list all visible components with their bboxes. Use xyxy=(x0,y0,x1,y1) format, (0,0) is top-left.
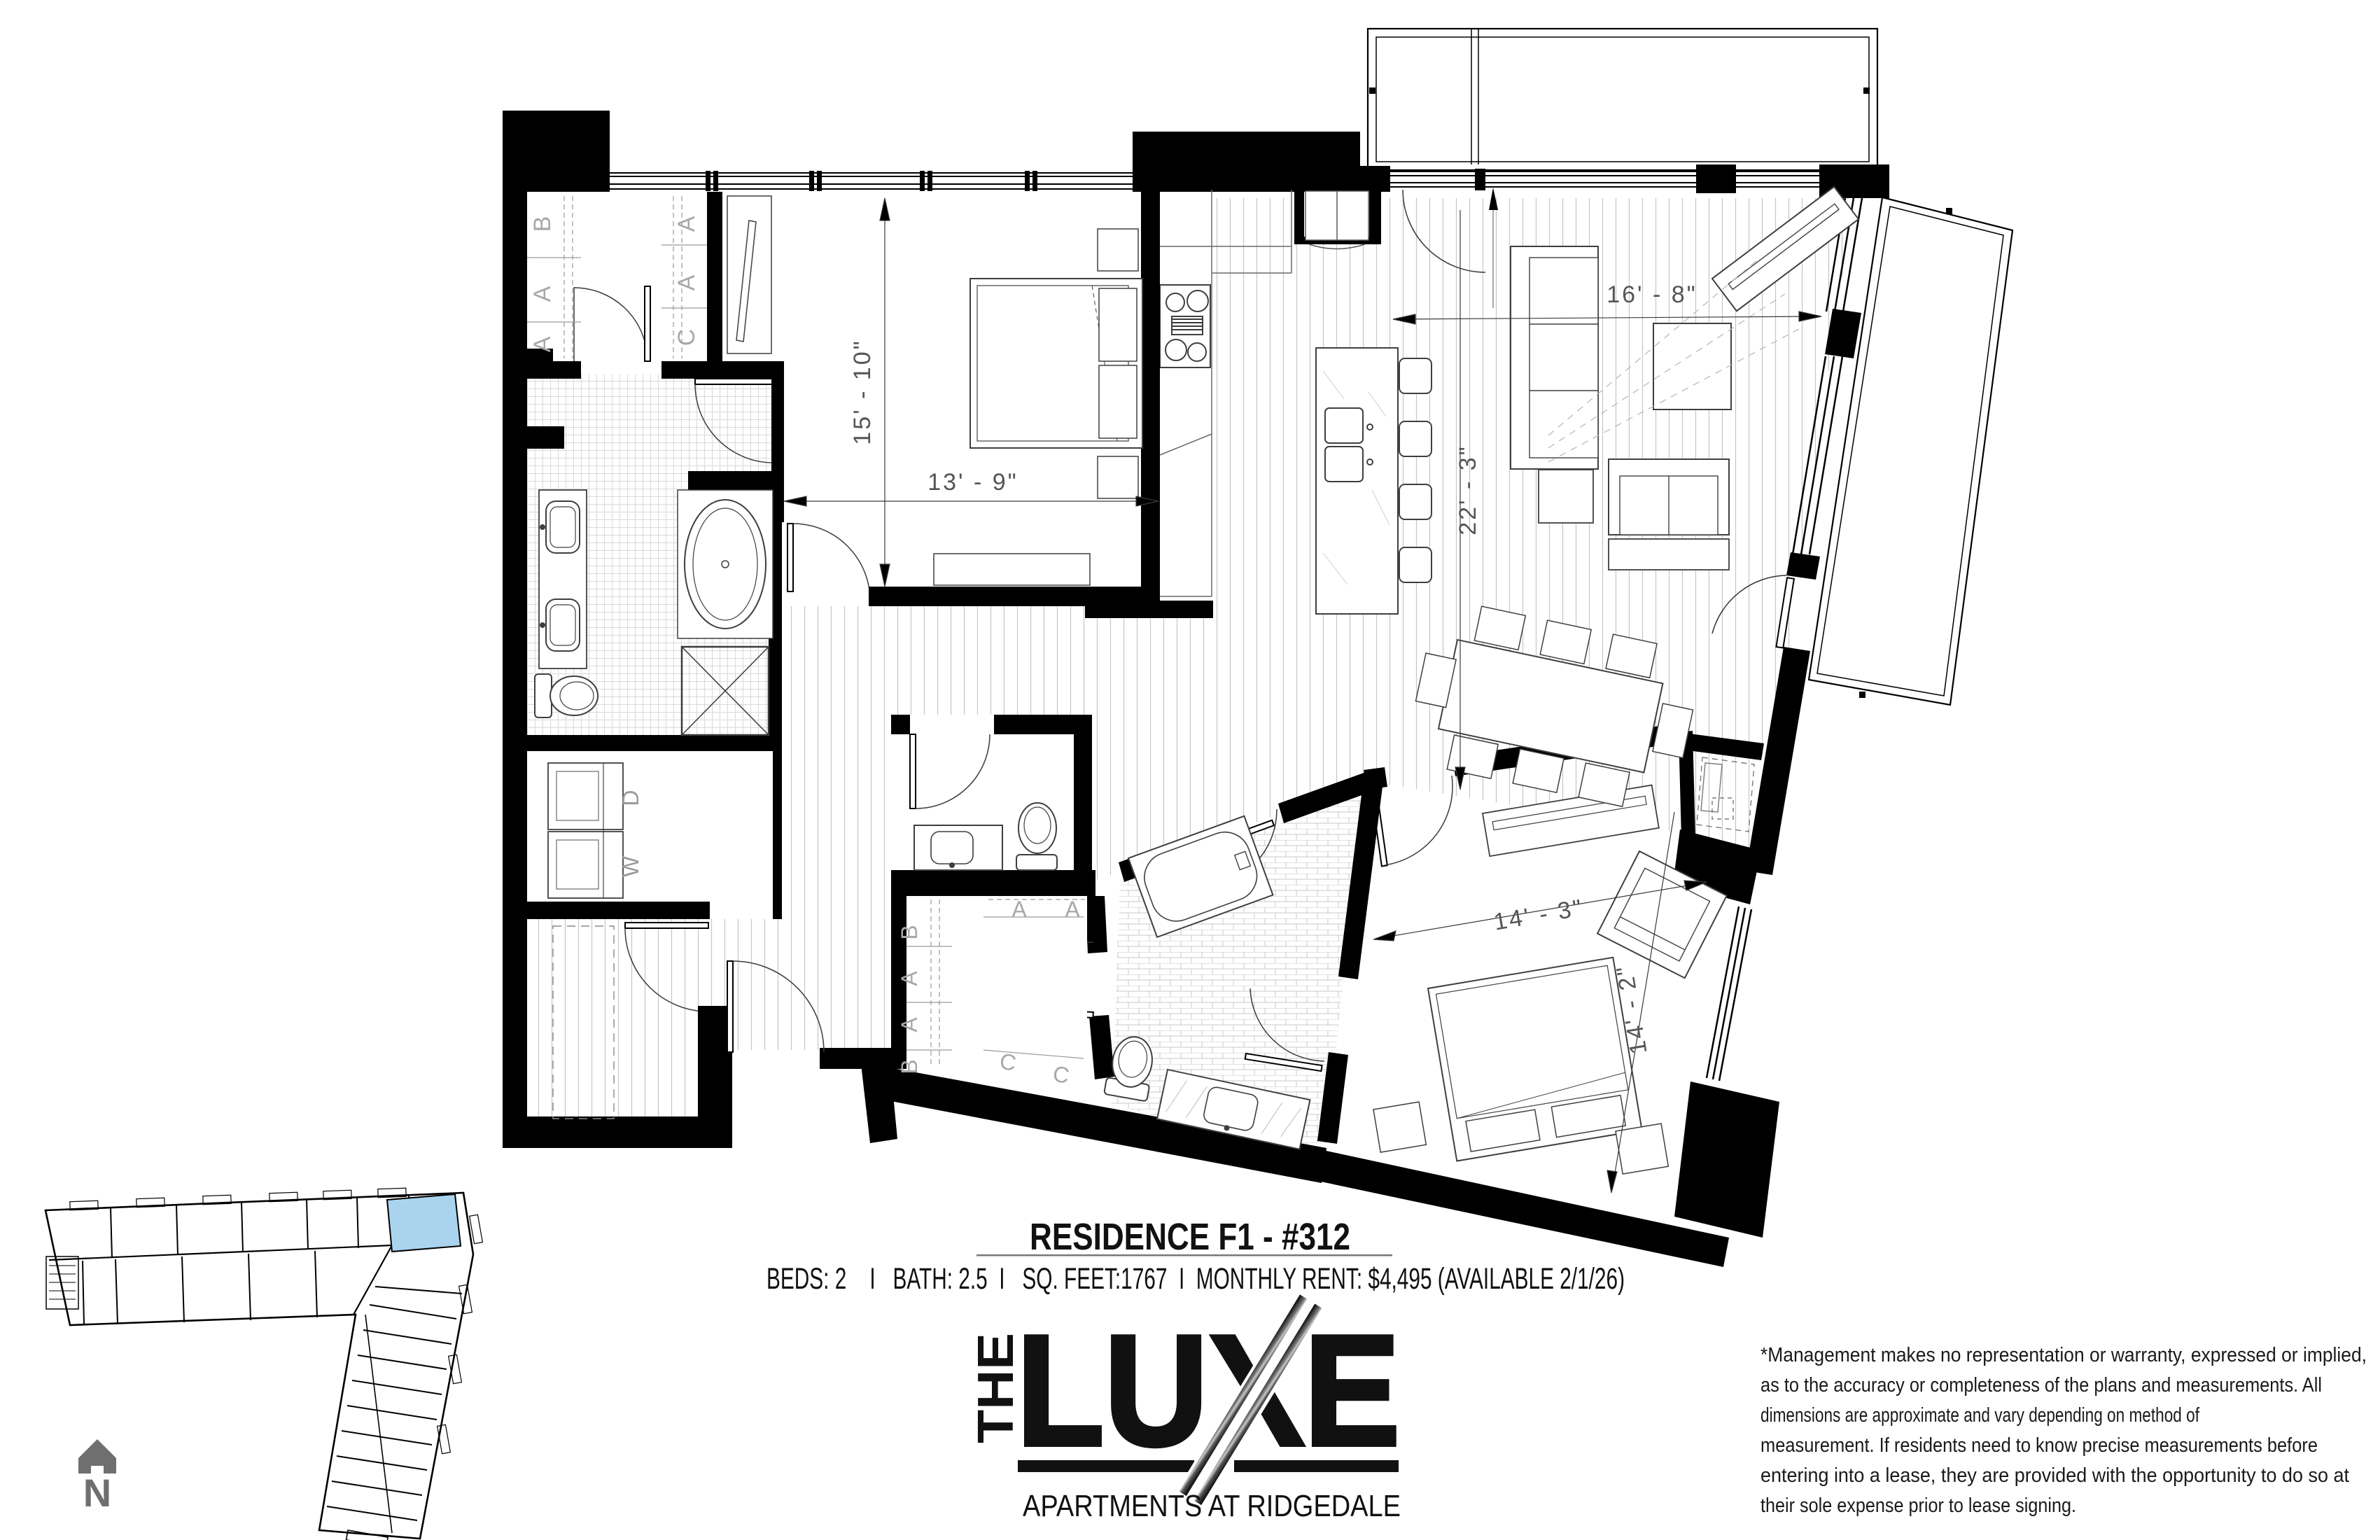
svg-text:A: A xyxy=(529,336,556,352)
svg-text:dimensions are approximate and: dimensions are approximate and vary depe… xyxy=(1760,1404,2200,1427)
svg-text:A: A xyxy=(673,216,700,232)
svg-text:their sole expense prior to le: their sole expense prior to lease signin… xyxy=(1760,1494,2076,1517)
svg-text:measurement. If residents need: measurement. If residents need to know p… xyxy=(1760,1434,2318,1457)
svg-text:13' - 9": 13' - 9" xyxy=(927,469,1018,496)
svg-text:W: W xyxy=(618,855,643,877)
svg-text:N: N xyxy=(83,1471,111,1515)
svg-text:C: C xyxy=(997,1048,1018,1075)
svg-text:A: A xyxy=(529,286,556,302)
svg-text:A: A xyxy=(1011,897,1027,922)
svg-text:RESIDENCE F1 - #312: RESIDENCE F1 - #312 xyxy=(1030,1216,1350,1258)
svg-text:16' - 8": 16' - 8" xyxy=(1606,281,1697,308)
svg-text:BEDS: 2 I BATH: 2.5 I: BEDS: 2 I BATH: 2.5 I SQ. FEET:1767 I MO… xyxy=(766,1262,1625,1296)
svg-text:as to the accuracy or complete: as to the accuracy or completeness of th… xyxy=(1760,1374,2322,1396)
svg-text:14' - 3": 14' - 3" xyxy=(1492,895,1585,936)
svg-text:B: B xyxy=(529,216,556,232)
svg-text:A: A xyxy=(673,274,700,290)
svg-text:A: A xyxy=(897,1017,922,1032)
svg-text:A: A xyxy=(897,971,922,986)
svg-text:C: C xyxy=(673,329,700,346)
svg-text:entering into a lease, they ar: entering into a lease, they are provided… xyxy=(1760,1464,2349,1487)
svg-text:APARTMENTS AT RIDGEDALE: APARTMENTS AT RIDGEDALE xyxy=(1023,1489,1401,1523)
svg-text:*Management makes no represent: *Management makes no representation or w… xyxy=(1760,1344,2367,1366)
svg-text:B: B xyxy=(897,925,922,939)
svg-text:B: B xyxy=(897,1059,922,1074)
svg-text:C: C xyxy=(1051,1060,1071,1088)
svg-text:15' - 10": 15' - 10" xyxy=(849,339,876,444)
svg-text:A: A xyxy=(1065,897,1080,922)
svg-text:THE: THE xyxy=(968,1333,1024,1443)
svg-text:D: D xyxy=(618,790,643,806)
svg-text:22' - 3": 22' - 3" xyxy=(1455,444,1481,535)
